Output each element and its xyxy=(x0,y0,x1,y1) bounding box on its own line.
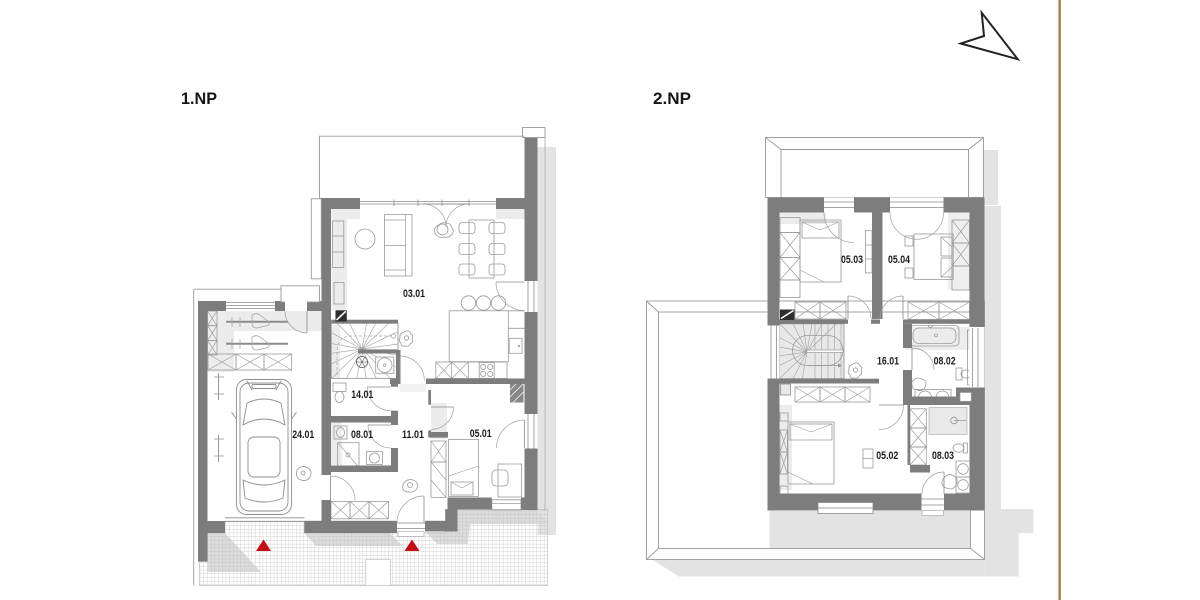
svg-text:05.02: 05.02 xyxy=(876,450,898,462)
svg-text:1.NP: 1.NP xyxy=(181,90,217,108)
svg-text:16.01: 16.01 xyxy=(877,356,899,368)
svg-text:03.01: 03.01 xyxy=(403,288,425,300)
svg-text:24.01: 24.01 xyxy=(292,429,314,441)
svg-text:05.03: 05.03 xyxy=(841,254,863,266)
svg-text:08.01: 08.01 xyxy=(351,429,373,441)
svg-text:11.01: 11.01 xyxy=(402,429,424,441)
svg-text:14.01: 14.01 xyxy=(351,389,373,401)
svg-text:08.03: 08.03 xyxy=(932,450,954,462)
svg-text:05.01: 05.01 xyxy=(470,428,492,440)
svg-text:05.04: 05.04 xyxy=(888,254,911,266)
svg-text:08.02: 08.02 xyxy=(934,356,956,368)
svg-text:2.NP: 2.NP xyxy=(653,90,691,108)
